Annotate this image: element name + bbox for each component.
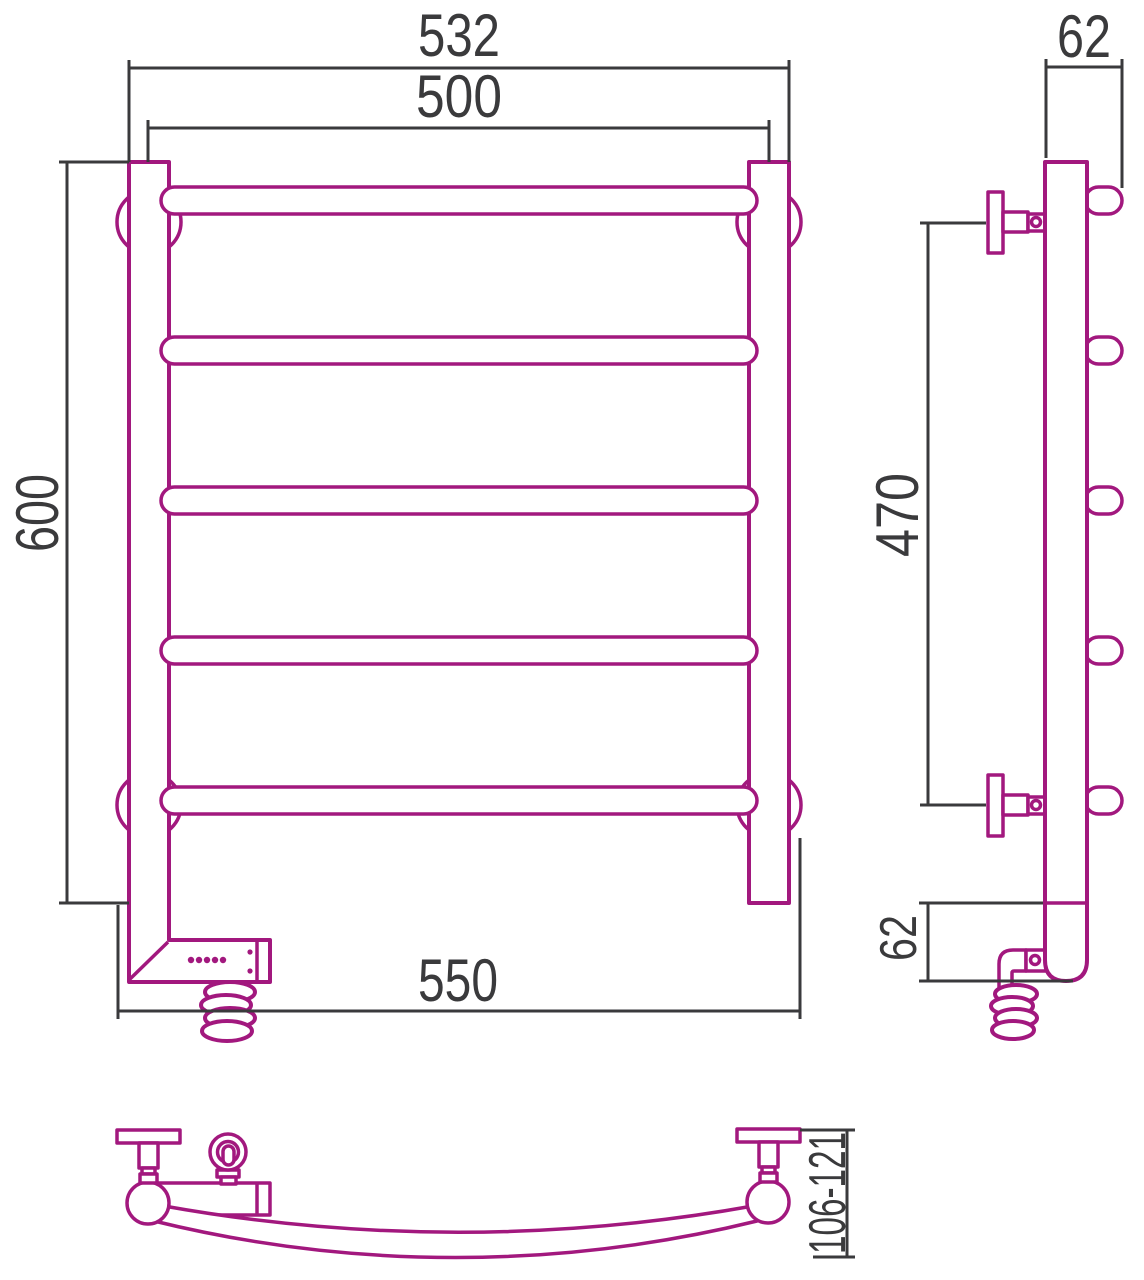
rung-end bbox=[1085, 487, 1122, 514]
top-view bbox=[117, 1129, 800, 1258]
led-indicator bbox=[188, 957, 194, 963]
dim-label-470: 470 bbox=[864, 473, 931, 557]
screw-dot bbox=[247, 968, 252, 973]
dimension-500: 500 bbox=[148, 63, 769, 162]
left-post-section bbox=[127, 1182, 169, 1224]
rung-end bbox=[1085, 637, 1122, 664]
screw-dot bbox=[247, 949, 252, 954]
rung-5 bbox=[161, 787, 757, 814]
rung-end bbox=[1085, 787, 1122, 814]
rung-2 bbox=[161, 337, 757, 364]
right-post-section bbox=[747, 1181, 789, 1223]
dim-label-600: 600 bbox=[4, 474, 71, 552]
led-indicator bbox=[220, 957, 226, 963]
connector-screw bbox=[1031, 956, 1040, 965]
rung-3 bbox=[161, 487, 757, 514]
dim-label-550: 550 bbox=[418, 947, 498, 1014]
led-indicator bbox=[196, 957, 202, 963]
rung-end bbox=[1085, 337, 1122, 364]
side-post bbox=[1045, 162, 1087, 981]
rung-end bbox=[1085, 187, 1122, 214]
towel-rail-technical-drawing: 532 500 600 550 bbox=[0, 0, 1144, 1280]
dim-label-500: 500 bbox=[416, 63, 502, 130]
wall-bracket-side-top bbox=[988, 192, 1045, 253]
dimension-600: 600 bbox=[4, 162, 129, 903]
dim-label-62-top: 62 bbox=[1057, 3, 1111, 70]
power-cable-spiral-side bbox=[991, 985, 1037, 1039]
rung-1 bbox=[161, 187, 757, 214]
front-view bbox=[117, 162, 801, 1041]
wall-bracket-side-bottom bbox=[988, 775, 1045, 836]
dim-label-62-bottom: 62 bbox=[870, 915, 928, 961]
dim-label-532: 532 bbox=[418, 2, 500, 69]
led-indicator bbox=[212, 957, 218, 963]
left-post-and-control-box bbox=[129, 162, 270, 982]
rung-4 bbox=[161, 637, 757, 664]
wall-bracket-plan-right bbox=[737, 1129, 800, 1182]
drawing-canvas: 532 500 600 550 bbox=[0, 0, 1144, 1280]
dim-label-106-121: 106-121 bbox=[799, 1132, 857, 1254]
dimension-470: 470 bbox=[864, 223, 986, 805]
top-dimensions: 106-121 bbox=[799, 1130, 857, 1257]
side-view bbox=[988, 162, 1122, 1039]
dimension-106-121: 106-121 bbox=[799, 1130, 857, 1257]
led-indicator bbox=[204, 957, 210, 963]
wall-bracket-plan-left bbox=[117, 1130, 180, 1183]
cable-gland bbox=[210, 1134, 246, 1184]
